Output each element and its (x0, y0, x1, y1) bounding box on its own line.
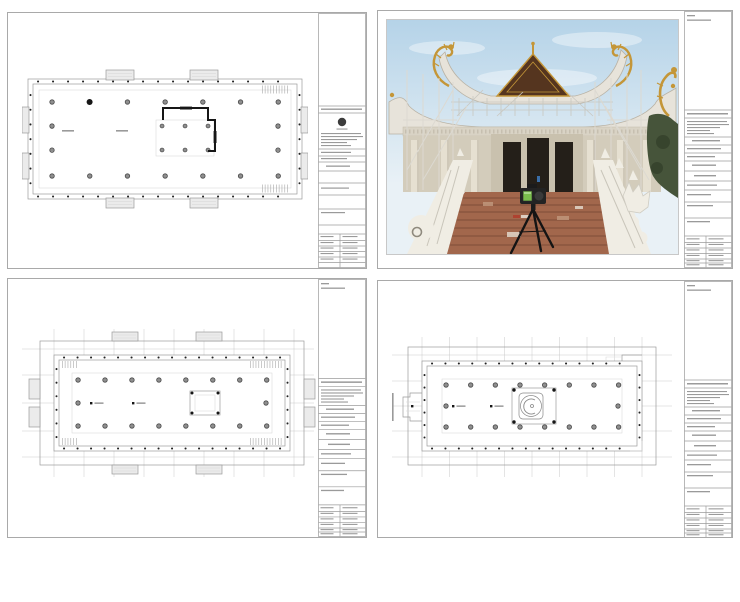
sheet-site-photo[interactable] (377, 10, 733, 269)
site-photo (386, 19, 679, 255)
drawing-set-canvas (0, 0, 740, 602)
highlighted-column (87, 99, 93, 105)
title-block (318, 13, 366, 268)
eave-ornament-right-icon (671, 84, 675, 88)
worker-figure (537, 176, 540, 182)
wall-outline (54, 355, 290, 451)
floor-plan-drawing (22, 69, 308, 209)
sheet-ground-floor-plan[interactable] (7, 12, 367, 269)
doorways (503, 138, 573, 192)
eave-ornament-left-icon (390, 93, 394, 97)
floor-plan-drawing (20, 327, 316, 479)
sheet-roof-plan[interactable] (377, 280, 733, 538)
title-block (318, 279, 366, 537)
vertical-note-text (392, 393, 394, 421)
sheet-upper-floor-plan[interactable] (7, 278, 367, 538)
debris-red (513, 215, 520, 218)
gable-finial (531, 42, 535, 46)
naga-head-left (408, 215, 434, 241)
left-porch (403, 393, 422, 421)
wall-outline (28, 79, 302, 199)
title-block (684, 281, 732, 537)
title-block (684, 11, 732, 268)
floor-plan-drawing (386, 331, 678, 481)
